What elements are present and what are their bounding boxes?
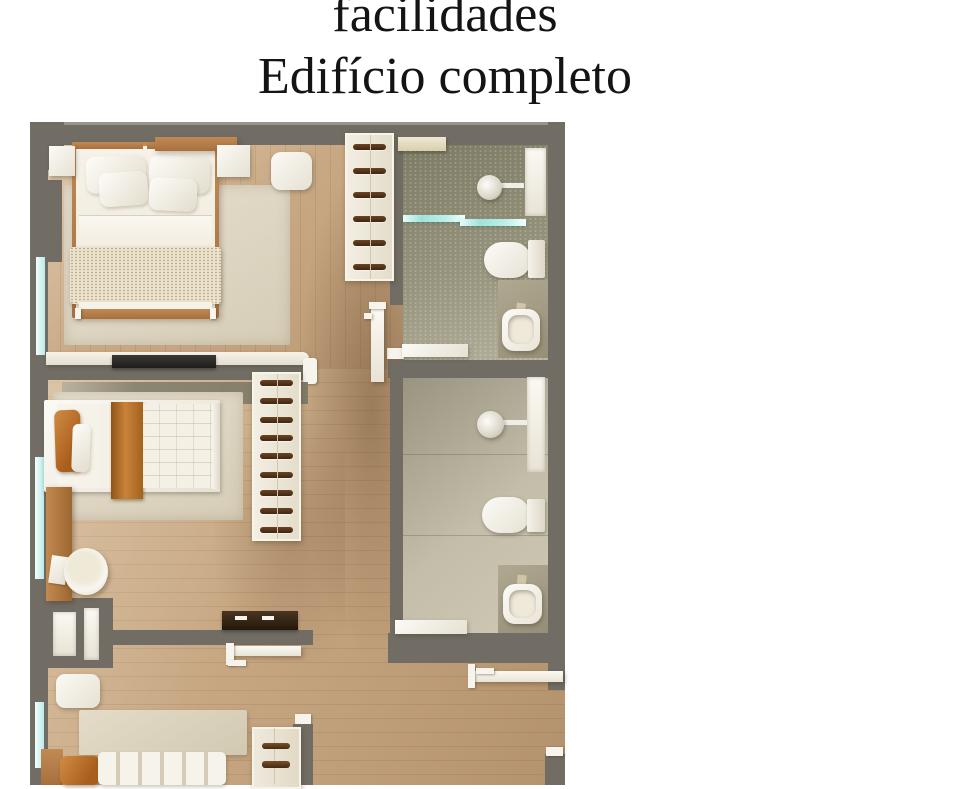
- floor-plan: [30, 122, 565, 785]
- bedroom1-wardrobe: [345, 133, 394, 281]
- bedroom1-footboard-cap-left: [75, 308, 81, 319]
- bathroom1-toilet-tank: [528, 240, 545, 278]
- bedroom3-pillow-row: [98, 752, 226, 785]
- bedroom1-footboard: [77, 309, 214, 319]
- corridor-door-top-cap: [369, 302, 386, 309]
- wall-top-highlight: [30, 122, 565, 125]
- bedroom1-pillow-front-right: [148, 177, 198, 212]
- closet-panel-1: [53, 612, 76, 656]
- bedroom2-wardrobe: [252, 372, 301, 541]
- wall-bedroom2-bottom: [111, 630, 313, 645]
- bathroom2-shower-head: [477, 411, 504, 438]
- bathroom2-door: [527, 377, 545, 472]
- bedroom1-pouf: [271, 152, 312, 190]
- bedroom3-door-leaf: [231, 646, 301, 656]
- desk-handle-2: [262, 616, 274, 620]
- wall-right: [548, 122, 565, 690]
- bedroom3-cabinet: [252, 727, 301, 789]
- page-title: facilidades Edifício completo: [0, 0, 890, 108]
- bedroom2-bed-foot: [212, 403, 220, 489]
- bedroom2-duvet: [143, 404, 213, 488]
- door-frame-cap-hall: [546, 747, 563, 756]
- bedroom2-round-table: [64, 548, 108, 595]
- bedroom3-cabinet-handle-2: [262, 761, 290, 768]
- wardrobe-divider: [277, 374, 278, 539]
- hall-door-handle: [476, 668, 494, 674]
- bedroom1-pillow-front-left: [98, 170, 149, 207]
- bathroom1-door: [525, 148, 546, 216]
- bedroom1-nightstand-left: [49, 146, 75, 176]
- wall-bathroom2-left: [390, 378, 403, 633]
- halfwall-end-cap: [303, 358, 317, 384]
- bathroom1-sink-bowl: [508, 315, 535, 344]
- window-left-1: [36, 257, 45, 355]
- window-left-2: [35, 457, 44, 579]
- closet-panel-2: [84, 608, 99, 660]
- corridor-door-handle: [364, 313, 372, 319]
- bathroom1-shower-glass-right: [460, 219, 526, 226]
- bathroom2-shower-arm: [500, 420, 528, 425]
- bathroom1-shower-glass-left: [403, 215, 465, 222]
- bedroom1-nightstand-right: [217, 145, 250, 177]
- bathroom2-bench: [395, 620, 467, 634]
- wall-left-pier: [48, 180, 62, 262]
- title-line-facilidades: facilidades: [0, 0, 890, 46]
- bathroom2-tile-joint: [403, 535, 548, 536]
- bedroom2-desk: [222, 611, 298, 630]
- bedroom3-cabinet-divider: [274, 728, 275, 784]
- corridor-door-leaf: [371, 308, 384, 382]
- bedroom2-white-pillow: [71, 424, 91, 473]
- bedroom1-blanket: [70, 247, 221, 304]
- bedroom3-cabinet-handle-1: [262, 743, 290, 749]
- wall-between-bathrooms: [388, 360, 565, 378]
- bedroom1-folded-sheet: [79, 215, 212, 250]
- bedroom3-door-handle: [228, 660, 246, 666]
- bedroom3-headboard: [79, 710, 247, 755]
- bathroom2-toilet-bowl: [482, 497, 530, 533]
- bedroom2-bed-runner: [111, 402, 143, 499]
- page-background: { "title": { "line1": "facilidades", "li…: [0, 0, 960, 785]
- desk-handle-1: [235, 616, 247, 620]
- tv-panel: [112, 355, 216, 368]
- wall-right-lower: [545, 754, 565, 785]
- bathroom1-sink-basin: [502, 309, 540, 351]
- wardrobe-divider: [370, 135, 371, 279]
- title-line-edificio-completo: Edifício completo: [0, 46, 890, 108]
- bathroom1-wall-shelf: [398, 137, 446, 151]
- bathroom1-bench: [402, 344, 468, 357]
- hall-door-frame: [468, 664, 475, 688]
- bedroom1-headboard-left: [74, 142, 143, 149]
- bathroom2-sink-bowl: [509, 590, 536, 618]
- bathroom1-shower-head: [477, 175, 502, 200]
- bedroom3-armchair: [56, 674, 100, 708]
- bedroom3-orange-pillow: [60, 756, 100, 785]
- bedroom1-footboard-cap-right: [210, 308, 216, 319]
- bathroom2-sink-basin: [503, 584, 542, 624]
- bathroom1-toilet-bowl: [484, 242, 531, 278]
- bathroom2-toilet-tank: [527, 499, 545, 532]
- wall-bottom-bathroom: [388, 633, 565, 663]
